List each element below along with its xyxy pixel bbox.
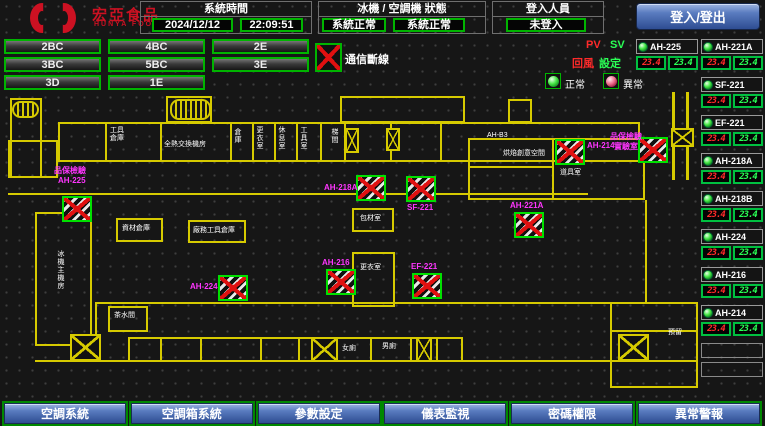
unit-led-ah-218a [703,156,713,166]
map-unit-label: AH-218A [324,184,357,192]
map-room-label: 更衣室 [360,264,381,272]
system-date-value: 2024/12/12 [152,18,233,32]
map-wall [298,337,300,362]
map-wall [296,122,298,162]
unit-label: AH-216 [715,270,746,280]
floor-button-5bc[interactable]: 5BC [108,57,205,72]
map-room-label: 包材室 [360,215,381,223]
shaft-x-icon [618,334,649,361]
login-user-value: 未登入 [506,18,586,32]
unit-values-ah-225: 23.423.4 [636,56,698,70]
unit-led-ah-216 [703,270,713,280]
map-room-label: 資材倉庫 [122,225,150,233]
map-wall [508,99,532,123]
unit-sv-value: 23.4 [733,56,763,70]
unit-values-ah-214: 23.423.4 [701,322,763,336]
map-room-label: 更衣室 [255,126,263,150]
equipment-marker-ah-214[interactable] [555,139,585,165]
unit-pv-value: 23.4 [701,208,731,222]
unit-sv-value: 23.4 [733,132,763,146]
chiller-status-value: 系統正常 [322,18,386,32]
unit-values-ah-218a: 23.423.4 [701,170,763,184]
pv-name-label: 回風 [572,55,594,71]
unit-led-ah-221a [703,42,713,52]
map-wall [128,337,463,362]
comm-fail-icon [315,43,342,72]
unit-led-ah-214 [703,308,713,318]
unit-led-ah-224 [703,232,713,242]
map-wall [610,330,698,332]
unit-pv-value: 23.4 [701,56,731,70]
unit-name-ah-225: AH-225 [636,39,698,54]
map-wall [95,302,645,304]
shaft-x-icon [311,337,338,362]
system-clock-value: 22:09:51 [240,18,303,32]
map-wall [8,140,58,178]
stairs-icon [170,99,211,120]
map-unit-label: SF-221 [407,204,433,212]
unit-sv-value: 23.4 [733,170,763,184]
unit-led-ah-225 [638,42,648,52]
unit-label: AH-218A [715,156,753,166]
map-unit-label: AH-214 [587,142,615,150]
unit-label: AH-218B [715,194,753,204]
map-wall [645,200,647,302]
unit-empty-slot [701,343,763,358]
unit-values-ah-218b: 23.423.4 [701,208,763,222]
normal-label: 正常 [565,76,585,91]
unit-values-ef-221: 23.423.4 [701,132,763,146]
map-unit-label: AH-216 [322,259,350,267]
map-unit-label: 實驗室 [614,143,638,151]
map-room-label: 工具 倉庫 [110,127,124,143]
map-room-label: 全熱交換機房 [164,141,206,149]
unit-pv-value: 23.4 [701,94,731,108]
sv-name-label: 設定 [599,55,621,71]
map-wall [200,337,202,362]
shaft-x-icon [345,128,359,153]
map-unit-label: AH-221A [510,202,543,210]
login-label: 登入人員 [493,2,603,17]
map-room-label: AH-B3 [487,132,508,140]
unit-led-ah-218b [703,194,713,204]
map-wall [274,122,276,162]
unit-values-ah-221a: 23.423.4 [701,56,763,70]
shaft-x-icon [671,128,694,147]
sv-header: SV [610,39,625,51]
map-room-label: 男廁 [382,343,396,351]
unit-name-ah-224: AH-224 [701,229,763,244]
ahu-status-value: 系統正常 [393,18,465,32]
footer-button-5[interactable]: 密碼權限 [511,403,633,424]
footer-button-4[interactable]: 儀表監視 [384,403,506,424]
unit-sv-value: 23.4 [733,246,763,260]
unit-sv-value: 23.4 [733,284,763,298]
unit-label: AH-224 [715,232,746,242]
unit-pv-value: 23.4 [701,284,731,298]
login-logout-button[interactable]: 登入/登出 [636,3,760,30]
equipment-marker-sf-221[interactable] [406,176,436,202]
map-room-label: 冰機主機房 [56,250,64,290]
map-unit-label: EF-221 [411,263,437,271]
map-room-label: 廠務工具倉庫 [193,227,235,235]
floor-button-2e[interactable]: 2E [212,39,309,54]
equipment-marker-ah-221a[interactable] [514,212,544,238]
map-wall [252,122,254,162]
equipment-marker-ah-216[interactable] [326,269,356,295]
map-room-label: 倉庫 [233,128,241,144]
map-unit-label: 品保檢驗 [610,133,642,141]
unit-values-ah-216: 23.423.4 [701,284,763,298]
map-room-label: 梯間 [330,128,338,144]
map-wall [468,166,554,168]
equipment-marker-ef-221[interactable] [412,273,442,299]
map-unit-label: AH-225 [58,177,86,185]
unit-label: AH-221A [715,42,753,52]
unit-led-sf-221 [703,80,713,90]
unit-empty-slot [701,362,763,377]
footer-button-1[interactable]: 空調系統 [4,403,126,424]
unit-label: EF-221 [715,118,745,128]
map-room-label: 烘焙創意空間 [503,150,545,158]
unit-name-ah-216: AH-216 [701,267,763,282]
unit-name-ah-221a: AH-221A [701,39,763,54]
equipment-marker-ah-225[interactable] [62,196,92,222]
unit-sv-value: 23.4 [733,94,763,108]
unit-sv-value: 23.4 [733,208,763,222]
floor-button-3bc[interactable]: 3BC [4,57,101,72]
map-room-label: 休息室 [277,126,285,150]
map-room-label: 預留 [668,329,682,337]
stairs-icon [12,101,39,118]
unit-pv-value: 23.4 [701,322,731,336]
map-wall [410,337,412,362]
unit-name-sf-221: SF-221 [701,77,763,92]
equipment-marker-ah-224[interactable] [218,275,248,301]
shaft-x-icon [386,128,400,151]
map-wall [440,122,442,162]
floor-button-2bc[interactable]: 2BC [4,39,101,54]
abnormal-led [603,73,619,89]
unit-name-ah-218a: AH-218A [701,153,763,168]
system-time-label: 系統時間 [141,2,311,17]
map-wall [105,122,107,162]
map-unit-label: 品保檢驗 [54,167,86,175]
map-wall [160,337,162,362]
footer-button-6[interactable]: 異常警報 [638,403,760,424]
map-room-label: 道具室 [560,169,581,177]
floor-button-3e[interactable]: 3E [212,57,309,72]
map-wall [370,337,372,362]
floor-button-3d[interactable]: 3D [4,75,101,90]
unit-pv-value: 23.4 [701,132,731,146]
map-wall [552,138,554,200]
map-wall [320,122,322,162]
abnormal-label: 異常 [623,76,643,91]
unit-pv-value: 23.4 [701,170,731,184]
unit-name-ef-221: EF-221 [701,115,763,130]
unit-sv-value: 23.4 [733,322,763,336]
map-unit-label: AH-224 [190,283,218,291]
brand-logo-icon [30,3,86,33]
map-wall [436,337,438,362]
normal-led [545,73,561,89]
shaft-x-icon [70,334,101,361]
shaft-x-icon [416,337,432,362]
map-room-label: 工具室 [299,126,307,150]
unit-values-sf-221: 23.423.4 [701,94,763,108]
map-wall [160,122,162,162]
map-wall [230,122,232,162]
unit-name-ah-214: AH-214 [701,305,763,320]
map-wall [340,96,465,123]
equipment-marker-ah-218b[interactable] [638,137,668,163]
hmi-screen: 宏亞食品 HUNYA FOODS 系統時間 2024/12/12 22:09:5… [0,0,765,426]
machine-status-label: 冰機 / 空調機 狀態 [319,2,485,17]
unit-led-ef-221 [703,118,713,128]
unit-pv-value: 23.4 [636,56,666,70]
floor-button-1e[interactable]: 1E [108,75,205,90]
comm-fail-label: 通信斷線 [345,51,389,67]
unit-pv-value: 23.4 [701,246,731,260]
unit-label: SF-221 [715,80,745,90]
map-wall [352,252,395,307]
unit-label: AH-225 [650,42,681,52]
unit-sv-value: 23.4 [668,56,698,70]
map-wall [35,360,698,362]
map-room-label: 茶水間 [114,312,135,320]
footer-button-3[interactable]: 參數設定 [258,403,380,424]
unit-name-ah-218b: AH-218B [701,191,763,206]
floor-button-4bc[interactable]: 4BC [108,39,205,54]
map-room-label: 女廁 [342,345,356,353]
unit-values-ah-224: 23.423.4 [701,246,763,260]
pv-header: PV [586,39,601,51]
footer-button-2[interactable]: 空調箱系統 [131,403,253,424]
map-wall [8,193,588,195]
equipment-marker-ah-218a[interactable] [356,175,386,201]
unit-label: AH-214 [715,308,746,318]
map-wall [260,337,262,362]
